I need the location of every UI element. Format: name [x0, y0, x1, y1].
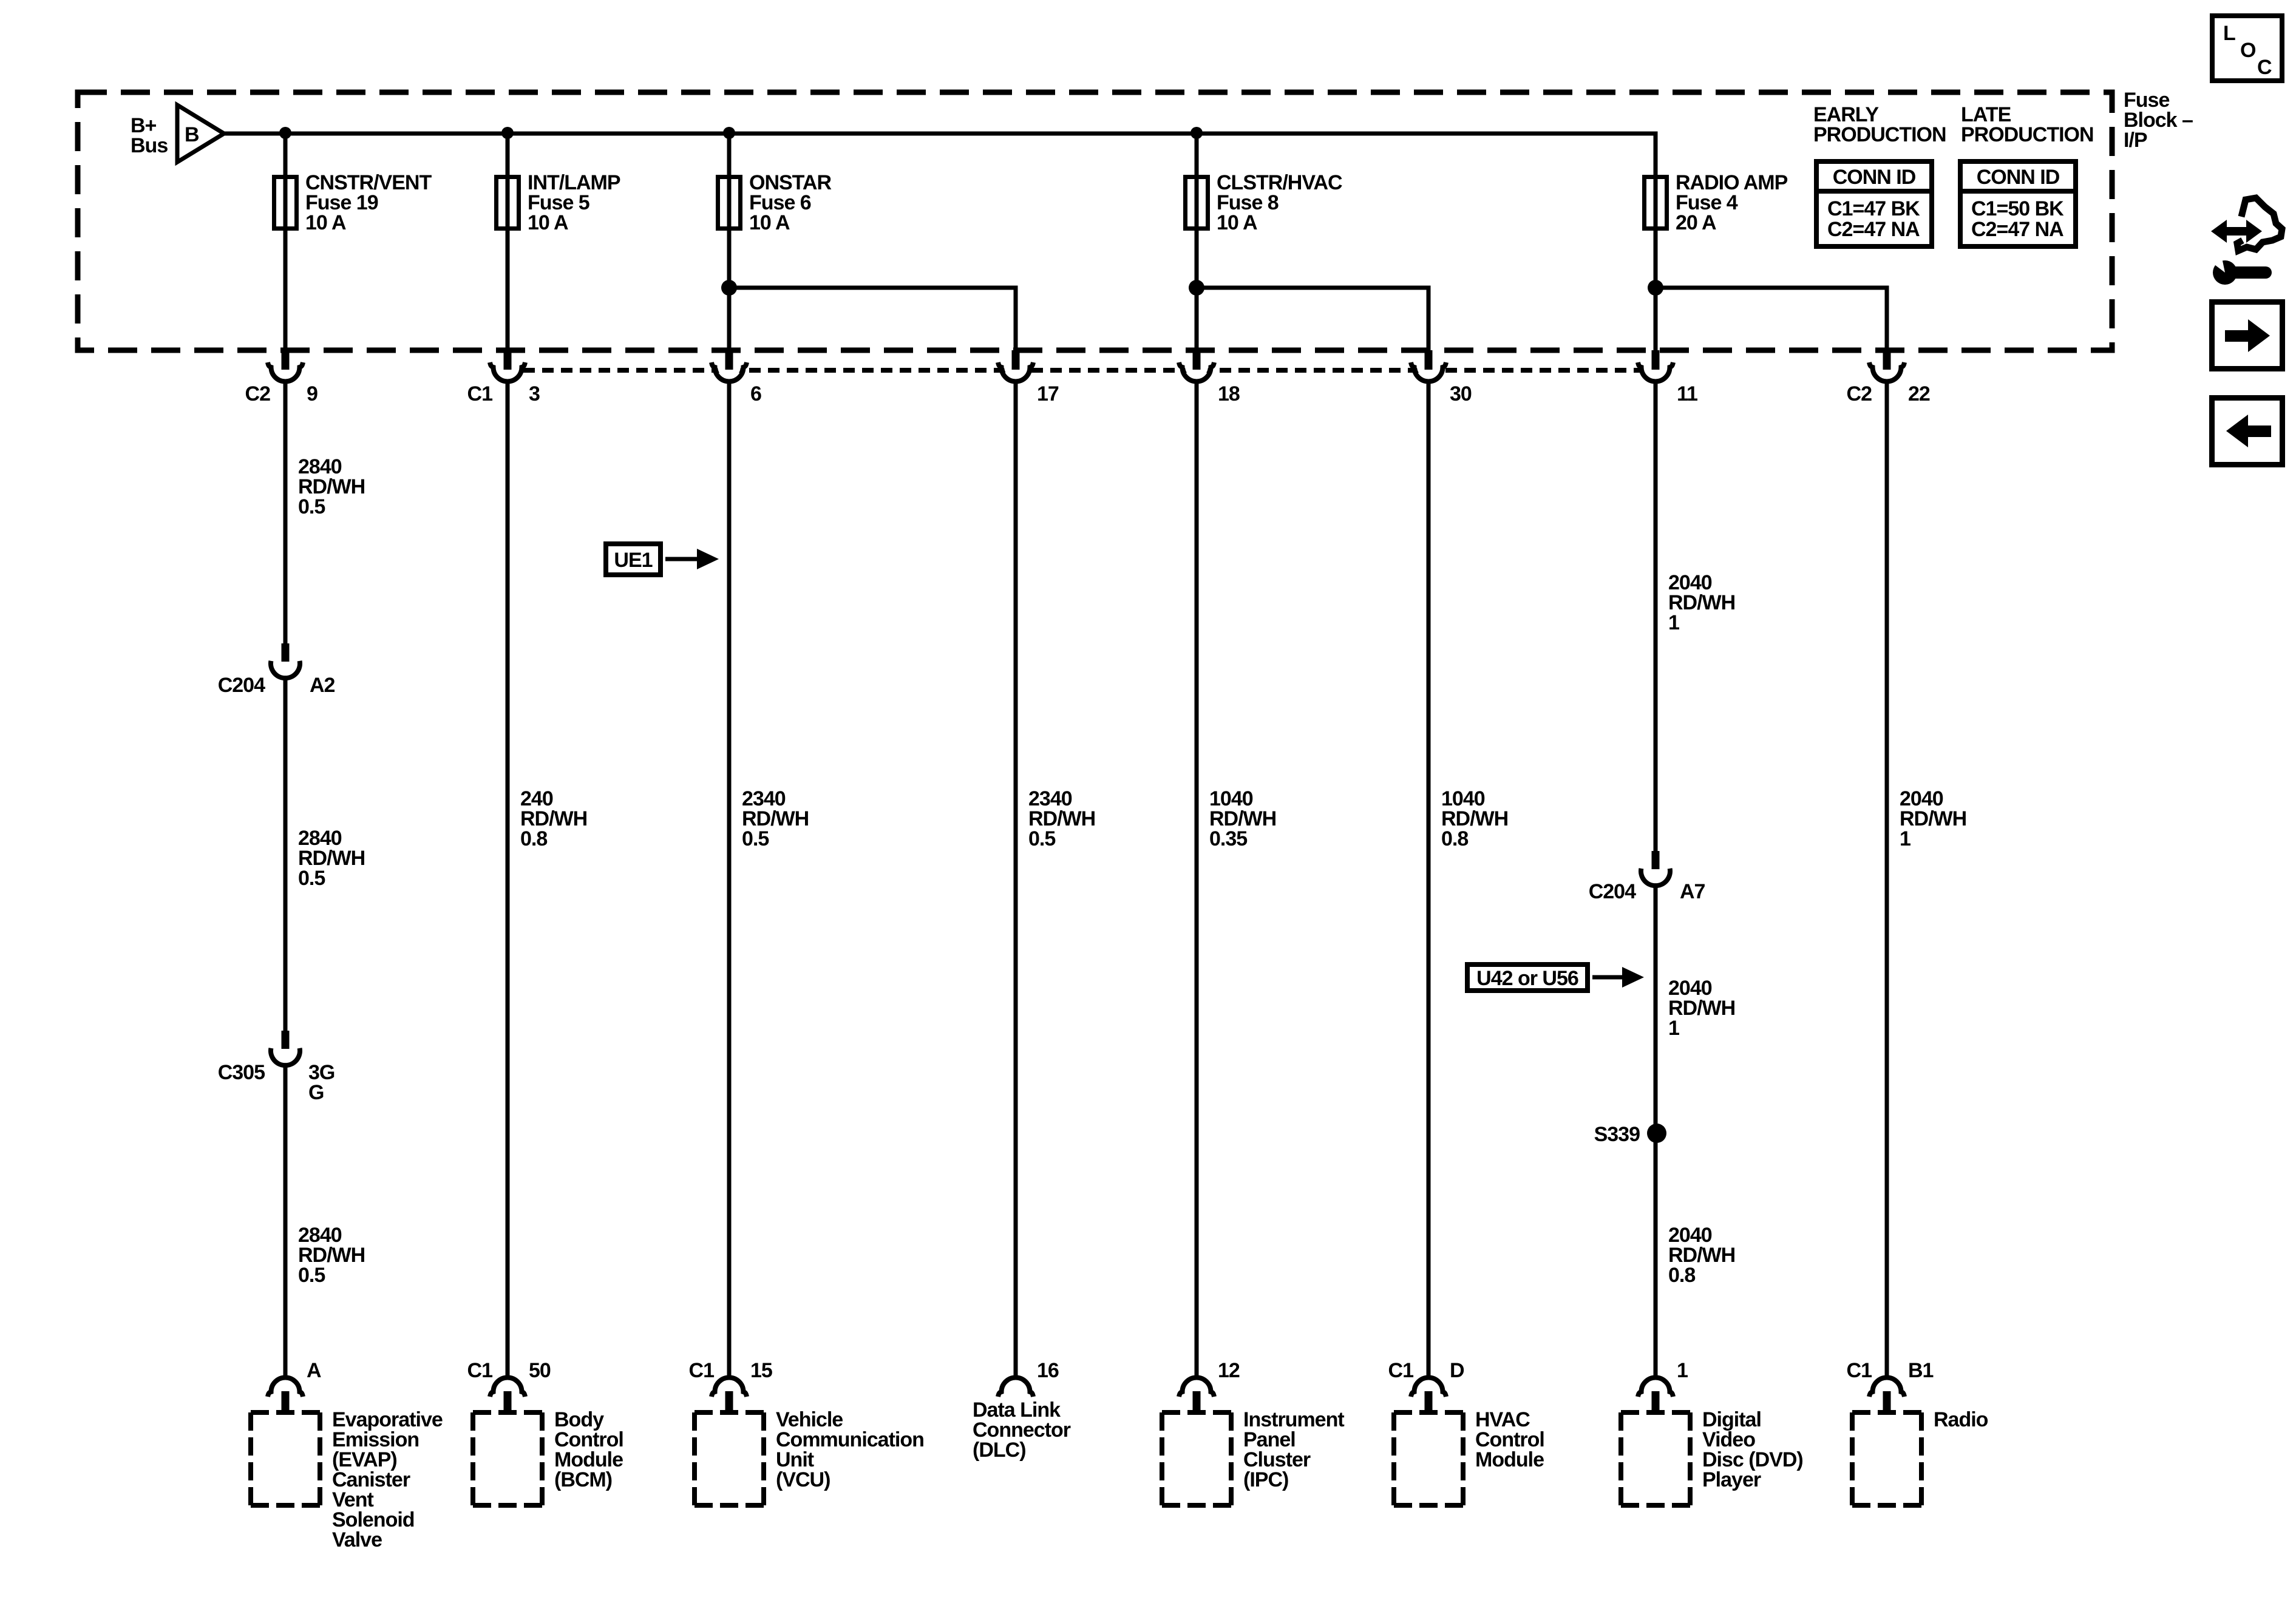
- svg-text:B1: B1: [1908, 1359, 1934, 1382]
- svg-text:C1: C1: [1847, 1359, 1872, 1382]
- svg-text:A2: A2: [310, 674, 335, 697]
- svg-text:(VCU): (VCU): [776, 1468, 830, 1491]
- svg-text:15: 15: [750, 1359, 772, 1382]
- svg-text:1: 1: [1677, 1359, 1688, 1382]
- svg-text:10 A: 10 A: [305, 211, 346, 234]
- svg-text:6: 6: [750, 382, 761, 405]
- svg-text:0.5: 0.5: [298, 495, 325, 518]
- svg-text:16: 16: [1037, 1359, 1059, 1382]
- svg-text:0.5: 0.5: [742, 827, 769, 850]
- svg-text:0.8: 0.8: [520, 827, 547, 850]
- svg-text:C1=47 BK: C1=47 BK: [1827, 197, 1920, 220]
- svg-text:C204: C204: [1589, 880, 1636, 903]
- svg-text:PRODUCTION: PRODUCTION: [1813, 123, 1946, 146]
- svg-text:C1=50 BK: C1=50 BK: [1971, 197, 2064, 220]
- svg-text:18: 18: [1218, 382, 1240, 405]
- svg-text:S339: S339: [1594, 1123, 1640, 1146]
- svg-text:CONN ID: CONN ID: [1833, 166, 1916, 189]
- svg-text:PRODUCTION: PRODUCTION: [1961, 123, 2094, 146]
- svg-text:30: 30: [1450, 382, 1472, 405]
- svg-text:10 A: 10 A: [749, 211, 790, 234]
- svg-text:C2: C2: [245, 382, 271, 405]
- svg-text:C204: C204: [218, 674, 265, 697]
- svg-text:O: O: [2240, 39, 2256, 62]
- svg-text:C2=47 NA: C2=47 NA: [1971, 218, 2063, 241]
- svg-text:C1: C1: [467, 382, 493, 405]
- svg-text:G: G: [308, 1081, 324, 1104]
- svg-text:0.35: 0.35: [1209, 827, 1247, 850]
- svg-text:1: 1: [1668, 611, 1679, 634]
- svg-text:Bus: Bus: [131, 134, 168, 157]
- svg-text:UE1: UE1: [614, 549, 652, 572]
- svg-text:A7: A7: [1680, 880, 1705, 903]
- svg-text:20 A: 20 A: [1676, 211, 1716, 234]
- svg-text:1: 1: [1900, 827, 1911, 850]
- svg-text:0.5: 0.5: [298, 867, 325, 890]
- svg-text:C2=47 NA: C2=47 NA: [1827, 218, 1920, 241]
- svg-text:I/P: I/P: [2124, 129, 2147, 152]
- svg-text:B: B: [185, 123, 199, 146]
- svg-text:(DLC): (DLC): [973, 1439, 1026, 1462]
- svg-text:D: D: [1450, 1359, 1464, 1382]
- svg-text:22: 22: [1908, 382, 1930, 405]
- svg-text:C305: C305: [218, 1061, 265, 1084]
- svg-text:11: 11: [1677, 382, 1697, 405]
- svg-text:17: 17: [1037, 382, 1059, 405]
- svg-text:C2: C2: [1847, 382, 1872, 405]
- svg-text:CONN ID: CONN ID: [1977, 166, 2060, 189]
- svg-text:12: 12: [1218, 1359, 1240, 1382]
- svg-text:Module: Module: [1475, 1448, 1544, 1471]
- svg-text:U42 or U56: U42 or U56: [1476, 967, 1578, 990]
- svg-text:0.8: 0.8: [1441, 827, 1468, 850]
- svg-text:L: L: [2223, 22, 2235, 45]
- svg-text:C1: C1: [467, 1359, 493, 1382]
- svg-text:(IPC): (IPC): [1243, 1468, 1288, 1491]
- svg-text:Valve: Valve: [332, 1528, 382, 1551]
- svg-text:50: 50: [529, 1359, 551, 1382]
- svg-text:Radio: Radio: [1934, 1408, 1988, 1431]
- svg-text:0.5: 0.5: [298, 1264, 325, 1287]
- svg-text:0.8: 0.8: [1668, 1264, 1695, 1287]
- svg-text:C1: C1: [689, 1359, 715, 1382]
- svg-text:1: 1: [1668, 1017, 1679, 1040]
- svg-text:C: C: [2257, 56, 2272, 79]
- svg-text:3: 3: [529, 382, 540, 405]
- svg-text:(BCM): (BCM): [554, 1468, 612, 1491]
- svg-text:C1: C1: [1388, 1359, 1414, 1382]
- svg-text:9: 9: [307, 382, 318, 405]
- svg-text:Player: Player: [1702, 1468, 1761, 1491]
- svg-text:10 A: 10 A: [1217, 211, 1257, 234]
- svg-text:A: A: [307, 1359, 321, 1382]
- svg-text:0.5: 0.5: [1028, 827, 1055, 850]
- svg-text:10 A: 10 A: [528, 211, 568, 234]
